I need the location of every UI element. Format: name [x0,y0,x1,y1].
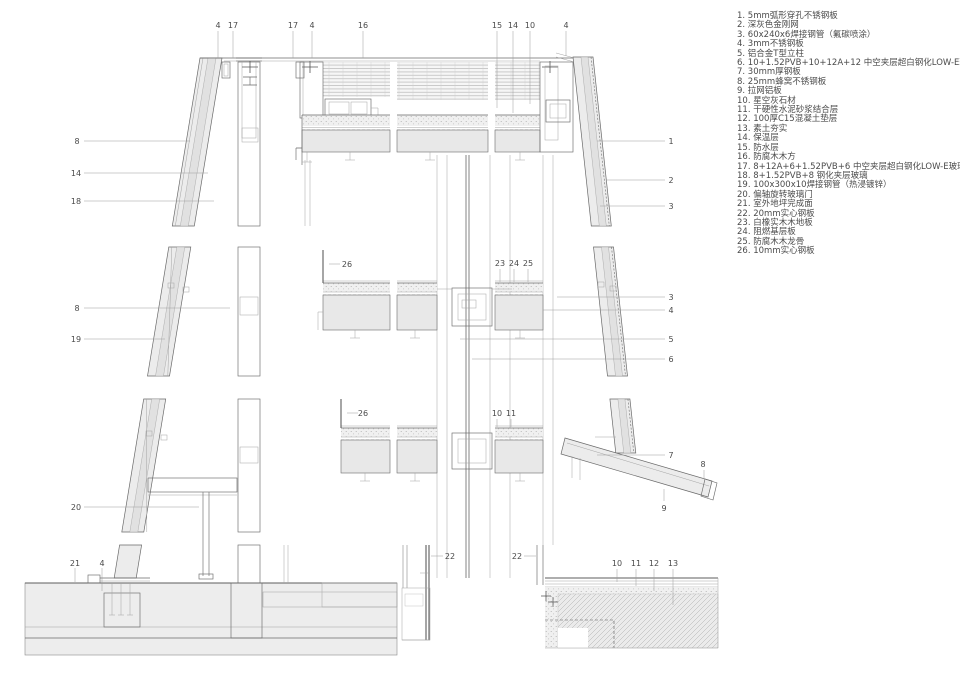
callout-label: 7 [668,451,673,460]
callout-label: 14 [71,169,81,178]
left-sloped-column [114,58,222,578]
callout-label: 3 [668,293,673,302]
callout-label: 8 [700,460,705,469]
callout-label: 26 [358,409,368,418]
ground-detail-right [537,545,718,648]
callout-label: 19 [71,335,81,344]
callout-label: 22 [512,552,522,561]
callout-label: 11 [631,559,641,568]
legend-list: 1. 5mm弧形穿孔不锈钢板2. 深灰色金刚网3. 60x240x6焊接钢管（氟… [737,12,953,257]
callout-label: 17 [288,21,298,30]
callout-label: 25 [523,259,533,268]
callout-label: 17 [228,21,238,30]
callout-label: 10 [612,559,622,568]
legend-item: 26. 10mm实心钢板 [737,247,953,256]
callout-label: 20 [71,503,81,512]
callout-label: 11 [506,409,516,418]
ground-detail-middle [402,545,430,640]
callout-label: 26 [342,260,352,269]
ground-foundation-left [25,545,397,655]
callout-label: 23 [495,259,505,268]
callout-label: 1 [668,137,673,146]
callout-label: 18 [71,197,81,206]
callout-label: 10 [492,409,502,418]
callout-label: 4 [668,306,673,315]
callout-label: 22 [445,552,455,561]
interior-glazing-lines [305,155,553,578]
callout-label: 3 [668,202,673,211]
callout-label: 24 [509,259,519,268]
legend-panel: 1. 5mm弧形穿孔不锈钢板2. 深灰色金刚网3. 60x240x6焊接钢管（氟… [737,12,953,257]
callout-label: 15 [492,21,502,30]
callout-label: 4 [309,21,314,30]
callout-label: 4 [215,21,220,30]
inner-wall [236,58,262,583]
callout-label: 2 [668,176,673,185]
architectural-detail-sheet: 4171741615141048141881920214123345678926… [0,0,960,677]
roof-assembly [200,53,578,165]
pivot-door [148,478,237,579]
callout-label: 8 [74,137,79,146]
roof-slab [296,115,540,165]
callout-label: 4 [99,559,104,568]
callout-label: 4 [563,21,568,30]
callout-label: 10 [525,21,535,30]
callout-label: 14 [508,21,518,30]
canopy [561,437,717,500]
callout-label: 8 [74,304,79,313]
right-sloped-facade [573,57,636,453]
callout-label: 16 [358,21,368,30]
callout-label: 13 [668,559,678,568]
callout-label: 6 [668,355,673,364]
callout-label: 5 [668,335,673,344]
callout-label: 9 [661,504,666,513]
callout-label: 21 [70,559,80,568]
callout-label: 12 [649,559,659,568]
